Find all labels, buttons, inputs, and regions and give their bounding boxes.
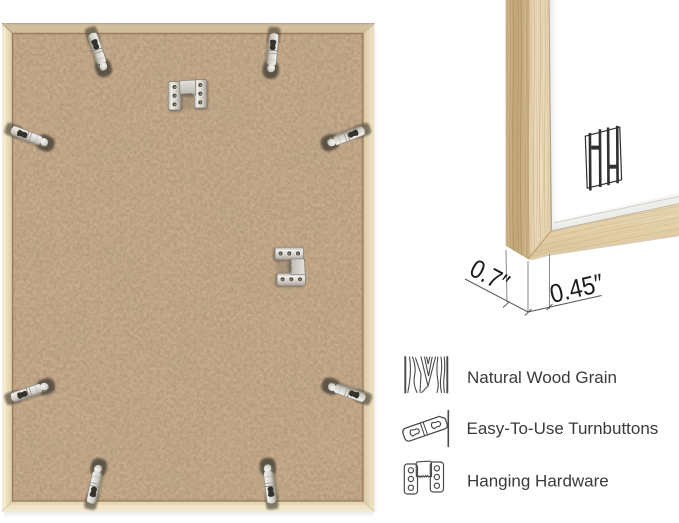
- svg-text:Natural Wood Grain: Natural Wood Grain: [467, 368, 617, 387]
- svg-text:Easy-To-Use Turnbuttons: Easy-To-Use Turnbuttons: [467, 419, 659, 438]
- svg-text:0.45″: 0.45″: [547, 268, 606, 309]
- svg-text:Hanging Hardware: Hanging Hardware: [467, 472, 609, 491]
